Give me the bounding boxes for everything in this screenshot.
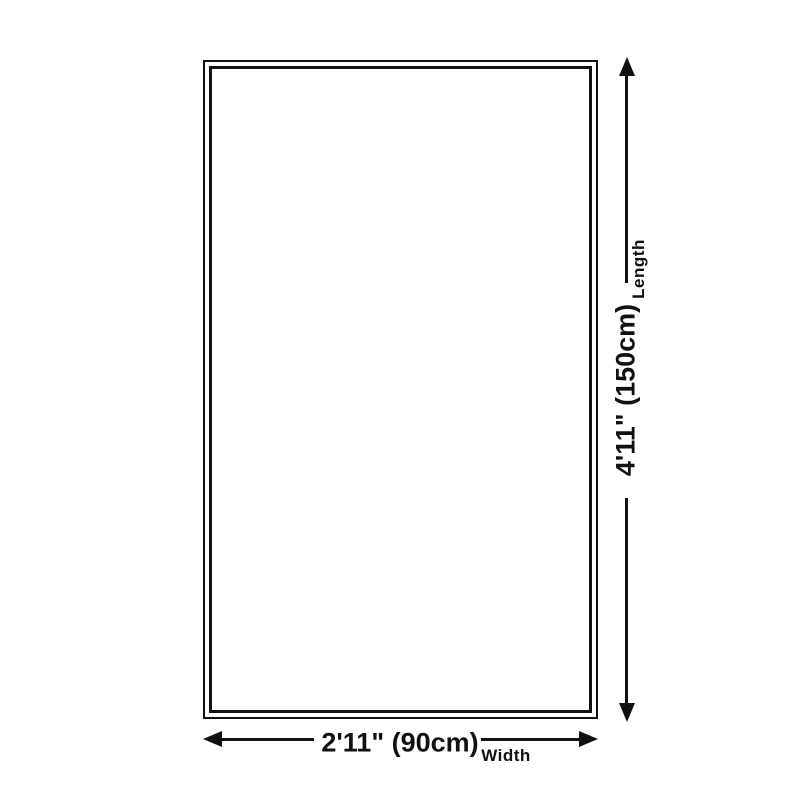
arrowhead-right-icon: [579, 731, 598, 747]
arrowhead-down-icon: [619, 703, 635, 722]
length-line-top-segment: [625, 74, 628, 283]
width-value: 2'11" (90cm): [321, 728, 478, 759]
length-label: Length: [629, 239, 649, 299]
rug-dimension-diagram: 4'11" (150cm) Length 2'11" (90cm) Width: [0, 0, 800, 800]
length-value: 4'11" (150cm): [611, 304, 642, 476]
length-line-bottom-segment: [625, 498, 628, 706]
rug-outline-inner: [209, 66, 592, 713]
width-label: Width: [481, 746, 531, 766]
width-line-right-segment: [481, 738, 582, 741]
width-line-left-segment: [219, 738, 314, 741]
rug-outline-outer: [203, 60, 598, 719]
